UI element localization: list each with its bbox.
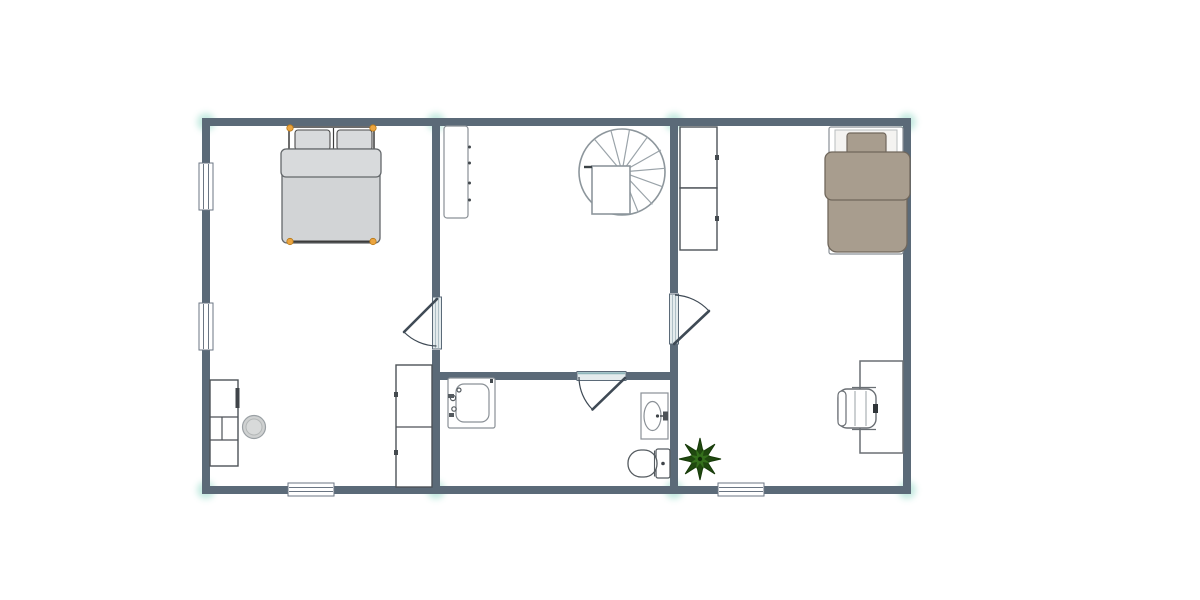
shelf-unit-upper[interactable] <box>680 127 719 188</box>
vanity-sink[interactable] <box>641 393 668 439</box>
dresser-knob <box>236 388 240 408</box>
washbasin[interactable] <box>448 378 495 428</box>
door-left-hall[interactable] <box>404 297 442 349</box>
basin-faucet <box>449 413 454 417</box>
door-swing-arc <box>675 295 709 311</box>
window-left-upper[interactable] <box>199 163 213 210</box>
shelf-unit-lower[interactable] <box>680 188 719 250</box>
wall-divider-left-upper[interactable] <box>432 126 440 298</box>
plant-center <box>698 457 702 461</box>
bed-blanket-fold <box>281 149 381 177</box>
wardrobe[interactable] <box>444 126 471 218</box>
wall-divider-right-upper[interactable] <box>670 126 678 293</box>
door-swing-arc <box>404 332 437 346</box>
potted-plant[interactable] <box>679 438 721 480</box>
round-stool[interactable] <box>243 416 266 439</box>
storage-cabinet[interactable] <box>394 365 432 487</box>
stool-cushion <box>246 419 262 435</box>
window-bottom-right[interactable] <box>718 483 764 496</box>
bed-blanket-fold <box>825 152 910 200</box>
wall-bathroom-top-right[interactable] <box>626 372 670 380</box>
spiral-staircase[interactable] <box>579 129 665 215</box>
stair-entry <box>592 166 630 214</box>
floor-plan-svg <box>0 0 1200 600</box>
cabinet-hinge <box>394 392 398 397</box>
basin-faucet <box>448 394 454 398</box>
window-bottom-left[interactable] <box>288 483 334 496</box>
sink-drain <box>656 414 659 417</box>
shelf-hinge <box>715 155 719 160</box>
wardrobe-hinge <box>468 146 471 149</box>
wall-divider-left-lower[interactable] <box>432 350 440 486</box>
wardrobe-hinge <box>468 162 471 165</box>
dresser[interactable] <box>210 380 240 466</box>
selection-handle[interactable] <box>287 125 293 131</box>
pillow-right <box>337 130 372 150</box>
chair-backrest <box>838 391 846 426</box>
selection-handle[interactable] <box>370 238 376 244</box>
cabinet-hinge <box>394 450 398 455</box>
toilet[interactable] <box>628 449 670 478</box>
toilet-bowl <box>628 450 657 477</box>
window-left-lower[interactable] <box>199 303 213 350</box>
wall-exterior-top[interactable] <box>202 118 911 126</box>
chair-knob <box>873 404 878 413</box>
selection-handle[interactable] <box>370 125 376 131</box>
floor-plan-canvas[interactable] <box>0 0 1200 600</box>
wardrobe-hinge <box>468 199 471 202</box>
wardrobe-hinge <box>468 182 471 185</box>
pillow-left <box>295 130 330 150</box>
shelf-hinge <box>715 216 719 221</box>
office-chair[interactable] <box>838 388 878 430</box>
door-hall-right[interactable] <box>670 294 710 344</box>
toilet-button <box>661 462 665 466</box>
wall-divider-right-lower[interactable] <box>670 343 678 486</box>
door-swing-line <box>593 378 626 410</box>
sink-faucet <box>663 412 668 421</box>
door-hall-bathroom[interactable] <box>577 372 626 410</box>
basin-mark <box>490 379 493 383</box>
single-bed[interactable] <box>825 127 910 254</box>
door-swing-line <box>674 311 709 344</box>
double-bed[interactable] <box>281 125 381 245</box>
door-swing-arc <box>579 377 593 410</box>
selection-handle[interactable] <box>287 238 293 244</box>
